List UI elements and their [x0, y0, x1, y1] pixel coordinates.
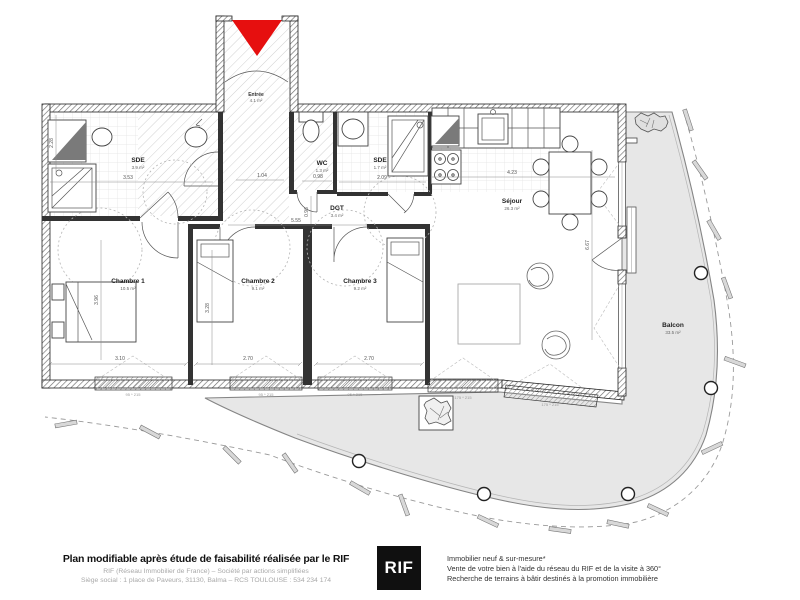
- dimension-label: 6.67: [585, 240, 591, 250]
- room-area-sejour: 26.3 m²: [504, 206, 520, 211]
- floor-plan-page: Entrée 4.1 m² SDE 3.9 m² WC 1.3 m² SDE 1…: [0, 0, 800, 600]
- window-size-label: 95 * 215: [348, 392, 364, 397]
- dimension-label: 3.28: [205, 303, 211, 313]
- window-size-label: 175 * 215: [454, 395, 472, 400]
- dimension-label: 2.28: [49, 138, 55, 148]
- room-label-sejour: Séjour: [502, 198, 523, 205]
- room-area-sde2: 1.7 m²: [374, 165, 387, 170]
- planter-bottom-icon: [419, 396, 453, 430]
- dimension-label: 2.70: [364, 356, 374, 362]
- dimension-label: 0.96: [304, 207, 310, 217]
- footer-company-lines: RIF (Réseau Immobilier de France) – Soci…: [38, 567, 374, 585]
- footer-service-line: Immobilier neuf & sur-mesure*: [447, 554, 661, 564]
- room-label-dgt: DGT: [330, 205, 344, 212]
- window-size-label: 95 * 215: [259, 392, 275, 397]
- dimension-label: 3.53: [123, 175, 133, 181]
- room-label-sde1: SDE: [131, 157, 145, 164]
- rif-logo: RIF: [377, 546, 421, 590]
- room-area-wc: 1.3 m²: [316, 168, 329, 173]
- room-area-sde1: 3.9 m²: [132, 165, 145, 170]
- footer-services-block: Immobilier neuf & sur-mesure* Vente de v…: [447, 554, 661, 584]
- room-area-dgt: 3.4 m²: [331, 213, 344, 218]
- plant-icon: [527, 263, 570, 359]
- room-label-chambre1: Chambre 1: [111, 278, 145, 285]
- footer-left-block: Plan modifiable après étude de faisabili…: [38, 553, 374, 585]
- footer-company-line1: RIF (Réseau Immobilier de France) – Soci…: [38, 567, 374, 576]
- dimension-label: 4.23: [507, 170, 517, 176]
- rug: [458, 284, 520, 344]
- floor-plan-drawing: Entrée 4.1 m² SDE 3.9 m² WC 1.3 m² SDE 1…: [0, 0, 800, 540]
- footer-title: Plan modifiable après étude de faisabili…: [38, 553, 374, 565]
- dimension-label: 1.04: [257, 173, 267, 179]
- room-label-chambre2: Chambre 2: [241, 278, 275, 285]
- room-area-chambre1: 10.5 m²: [120, 286, 136, 291]
- dimension-label: 2.70: [243, 356, 253, 362]
- dimension-label: 0.98: [313, 174, 323, 180]
- window-size-label: 175 * 215: [541, 402, 559, 407]
- room-area-balcon: 33.5 m²: [665, 330, 681, 335]
- footer-service-line: Vente de votre bien à l'aide du réseau d…: [447, 564, 661, 574]
- footer-service-line: Recherche de terrains à bâtir destinés à…: [447, 574, 661, 584]
- room-label-balcon: Balcon: [662, 322, 684, 329]
- dimension-label: 2.09: [377, 175, 387, 181]
- room-label-sde2: SDE: [373, 157, 387, 164]
- window-size-label: 95 * 215: [126, 392, 142, 397]
- room-label-wc: WC: [317, 160, 328, 167]
- room-area-chambre3: 9.2 m²: [354, 286, 367, 291]
- room-area-entree: 4.1 m²: [250, 98, 263, 103]
- room-area-chambre2: 9.1 m²: [252, 286, 265, 291]
- room-label-chambre3: Chambre 3: [343, 278, 377, 285]
- dimension-label: 5.55: [291, 218, 301, 224]
- dimension-label: 3.96: [94, 295, 100, 305]
- footer: Plan modifiable après étude de faisabili…: [0, 540, 800, 600]
- dimension-label: 3.10: [115, 356, 125, 362]
- footer-company-line2: Siège social : 1 place de Paveurs, 31130…: [38, 576, 374, 585]
